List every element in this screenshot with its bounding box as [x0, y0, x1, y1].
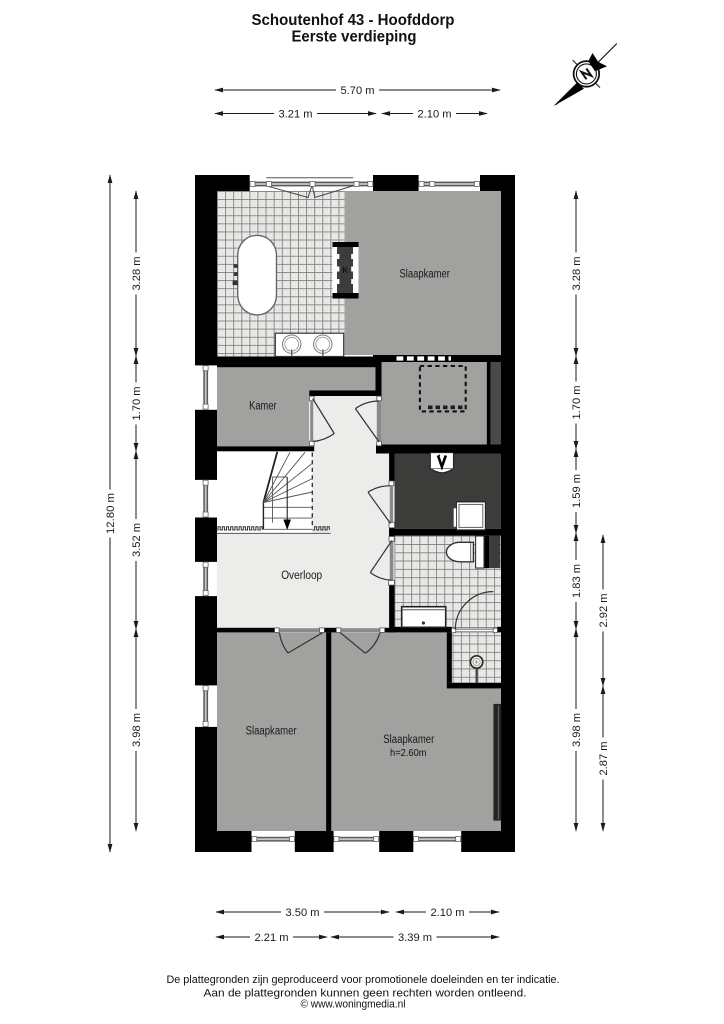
svg-text:h=2.60m: h=2.60m — [390, 747, 427, 759]
svg-text:2.92 m: 2.92 m — [598, 594, 610, 628]
svg-text:Slaapkamer: Slaapkamer — [383, 734, 434, 746]
svg-text:1.83 m: 1.83 m — [571, 564, 583, 598]
svg-text:2.10 m: 2.10 m — [418, 108, 452, 120]
svg-text:1.70 m: 1.70 m — [131, 387, 143, 421]
svg-text:Slaapkamer: Slaapkamer — [399, 269, 450, 281]
svg-text:2.21 m: 2.21 m — [255, 932, 289, 944]
svg-text:3.28 m: 3.28 m — [571, 257, 583, 291]
svg-text:1.59 m: 1.59 m — [571, 474, 583, 508]
svg-text:K: K — [342, 266, 348, 275]
svg-text:3.21 m: 3.21 m — [279, 108, 313, 120]
svg-text:1.70 m: 1.70 m — [571, 386, 583, 420]
svg-text:3.98 m: 3.98 m — [571, 713, 583, 747]
svg-text:3.50 m: 3.50 m — [286, 907, 320, 919]
svg-text:5.70 m: 5.70 m — [341, 85, 375, 97]
svg-text:Eerste verdieping: Eerste verdieping — [292, 29, 417, 46]
svg-text:12.80 m: 12.80 m — [105, 493, 117, 534]
svg-text:3.28 m: 3.28 m — [131, 257, 143, 291]
svg-text:Schoutenhof 43 - Hoofddorp: Schoutenhof 43 - Hoofddorp — [252, 12, 455, 29]
svg-text:Overloop: Overloop — [281, 570, 322, 582]
svg-text:Slaapkamer: Slaapkamer — [246, 726, 297, 738]
svg-text:2.10 m: 2.10 m — [431, 907, 465, 919]
svg-text:Kamer: Kamer — [249, 401, 277, 413]
svg-text:3.98 m: 3.98 m — [131, 713, 143, 747]
svg-text:2.87 m: 2.87 m — [598, 742, 610, 776]
svg-text:De plattegronden zijn geproduc: De plattegronden zijn geproduceerd voor … — [167, 974, 560, 986]
svg-text:3.52 m: 3.52 m — [131, 523, 143, 557]
svg-text:© www.woningmedia.nl: © www.woningmedia.nl — [301, 999, 406, 1011]
svg-text:3.39 m: 3.39 m — [398, 932, 432, 944]
